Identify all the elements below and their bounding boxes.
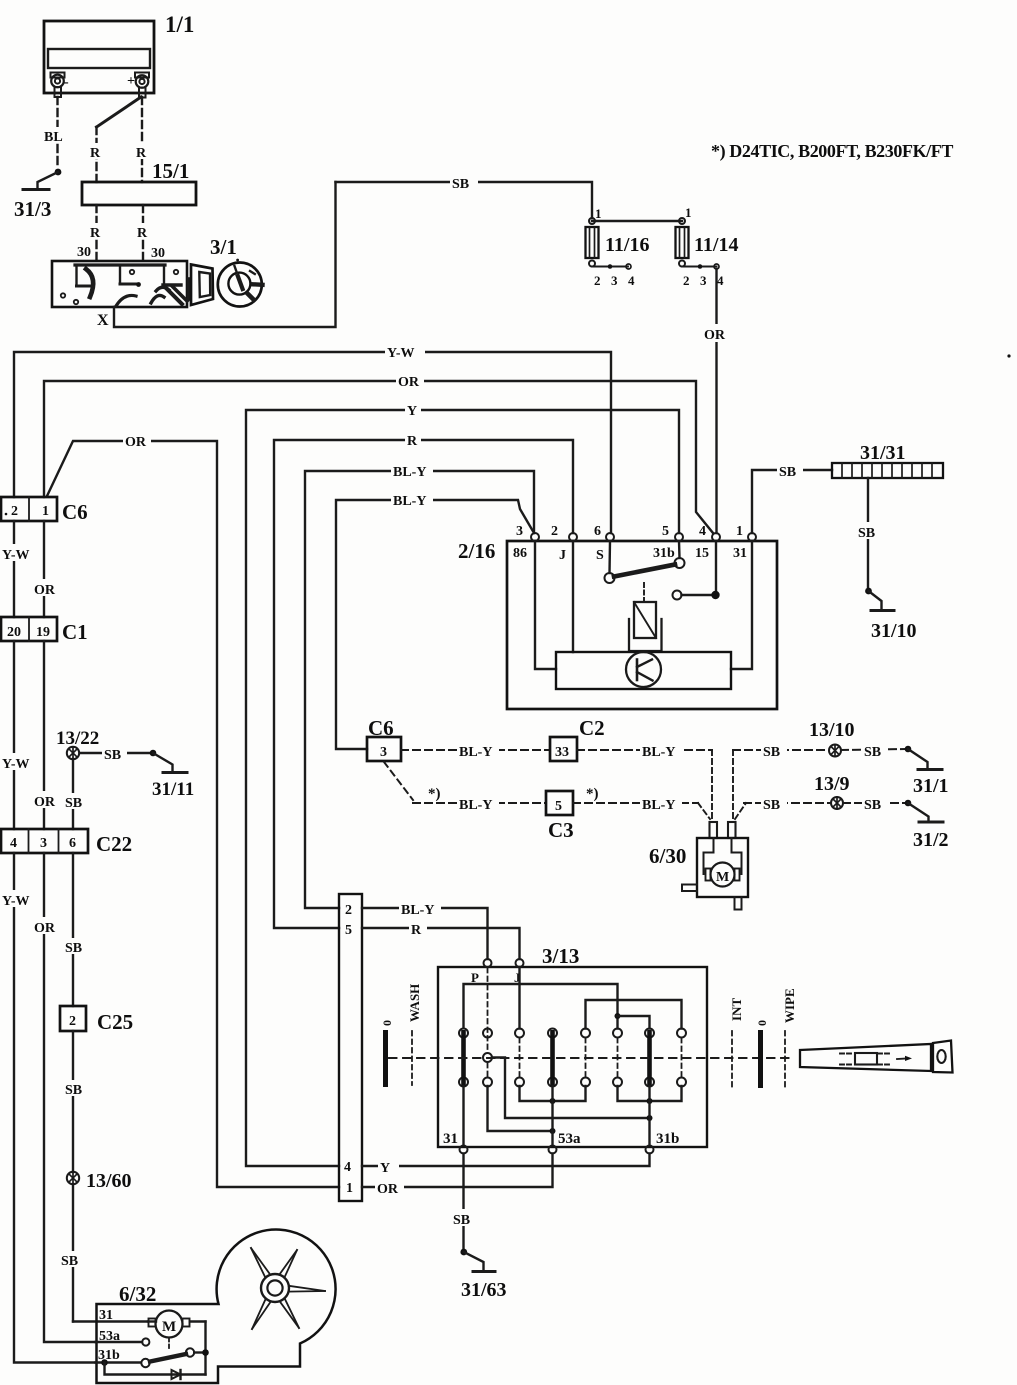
svg-text:WASH: WASH — [407, 984, 422, 1022]
svg-text:OR: OR — [398, 375, 420, 390]
svg-text:SB: SB — [858, 526, 875, 541]
svg-text:WIPE: WIPE — [782, 988, 797, 1023]
svg-text:C2: C2 — [579, 716, 605, 740]
svg-text:Y: Y — [380, 1161, 390, 1176]
svg-text:P: P — [471, 970, 479, 985]
svg-text:SB: SB — [779, 465, 796, 480]
svg-text:OR: OR — [704, 328, 726, 343]
svg-text:SB: SB — [104, 748, 121, 763]
svg-text:J: J — [559, 548, 566, 563]
svg-text:19: 19 — [36, 625, 50, 640]
svg-text:3/13: 3/13 — [542, 944, 579, 968]
svg-text:31: 31 — [443, 1131, 458, 1147]
svg-text:INT: INT — [729, 998, 744, 1021]
svg-text:5: 5 — [555, 799, 562, 814]
svg-text:-: - — [64, 75, 69, 90]
svg-text:13/10: 13/10 — [809, 719, 855, 741]
svg-text:SB: SB — [864, 745, 881, 760]
svg-text:11/16: 11/16 — [605, 234, 649, 256]
svg-text:2/16: 2/16 — [458, 539, 495, 563]
svg-text:53a: 53a — [558, 1131, 581, 1147]
svg-text:SB: SB — [452, 177, 469, 192]
svg-text:+: + — [127, 74, 135, 89]
svg-text:31/10: 31/10 — [871, 620, 917, 642]
svg-text:*): *) — [586, 786, 599, 802]
svg-text:3: 3 — [40, 836, 47, 851]
svg-text:0: 0 — [755, 1020, 769, 1026]
svg-text:SB: SB — [453, 1213, 470, 1228]
svg-text:4: 4 — [10, 836, 17, 851]
svg-text:C6: C6 — [62, 500, 88, 524]
svg-text:86: 86 — [513, 546, 527, 561]
svg-text:4: 4 — [628, 273, 635, 288]
svg-text:1: 1 — [42, 504, 49, 519]
svg-text:13/9: 13/9 — [814, 773, 850, 795]
svg-text:6/32: 6/32 — [119, 1282, 156, 1306]
svg-text:5: 5 — [662, 524, 669, 539]
svg-text:15/1: 15/1 — [152, 159, 189, 183]
svg-text:SB: SB — [65, 1083, 82, 1098]
svg-text:31: 31 — [99, 1308, 113, 1323]
svg-text:20: 20 — [7, 625, 21, 640]
svg-text:1: 1 — [346, 1181, 353, 1196]
svg-text:Y: Y — [407, 404, 417, 419]
svg-text:11/14: 11/14 — [694, 234, 738, 256]
svg-text:OR: OR — [34, 583, 56, 598]
svg-text:0: 0 — [380, 1020, 394, 1026]
svg-text:13/22: 13/22 — [56, 728, 99, 749]
svg-text:C1: C1 — [62, 620, 88, 644]
svg-text:C3: C3 — [548, 818, 574, 842]
svg-text:31b: 31b — [98, 1348, 120, 1363]
svg-text:2: 2 — [345, 903, 352, 918]
svg-text:2: 2 — [11, 504, 18, 519]
svg-text:2: 2 — [551, 524, 558, 539]
svg-text:31b: 31b — [653, 546, 675, 561]
svg-text:C22: C22 — [96, 832, 132, 856]
svg-text:SB: SB — [864, 798, 881, 813]
svg-text:31b: 31b — [656, 1131, 679, 1147]
svg-text:BL-Y: BL-Y — [459, 745, 492, 760]
svg-text:OR: OR — [34, 921, 56, 936]
svg-text:OR: OR — [34, 795, 56, 810]
svg-text:31/11: 31/11 — [152, 779, 194, 800]
svg-text:13/60: 13/60 — [86, 1170, 132, 1192]
svg-text:31: 31 — [733, 546, 747, 561]
svg-text:BL-Y: BL-Y — [393, 494, 426, 509]
svg-text:R: R — [90, 146, 101, 161]
svg-text:6: 6 — [69, 836, 76, 851]
svg-text:X: X — [97, 312, 109, 329]
svg-text:1: 1 — [595, 206, 602, 221]
svg-text:3: 3 — [380, 745, 387, 760]
svg-text:S: S — [596, 548, 604, 563]
svg-text:BL-Y: BL-Y — [393, 465, 426, 480]
svg-text:31/2: 31/2 — [913, 829, 949, 851]
svg-text:3: 3 — [516, 524, 523, 539]
svg-text:BL-Y: BL-Y — [642, 745, 675, 760]
svg-text:R: R — [137, 226, 148, 241]
svg-text:4: 4 — [717, 273, 724, 288]
svg-text:*) D24TIC, B200FT, B230FK/FT: *) D24TIC, B200FT, B230FK/FT — [711, 141, 953, 162]
svg-text:33: 33 — [555, 745, 569, 760]
svg-text:BL-Y: BL-Y — [459, 798, 492, 813]
svg-text:Y-W: Y-W — [387, 346, 415, 361]
svg-text:31/63: 31/63 — [461, 1279, 507, 1301]
svg-text:BL-Y: BL-Y — [642, 798, 675, 813]
svg-text:Y-W: Y-W — [2, 548, 30, 563]
svg-text:Y-W: Y-W — [2, 894, 30, 909]
svg-text:2: 2 — [594, 273, 601, 288]
svg-text:15: 15 — [695, 546, 709, 561]
svg-text:OR: OR — [377, 1182, 399, 1197]
svg-text:SB: SB — [65, 796, 82, 811]
svg-text:3/1: 3/1 — [210, 235, 237, 259]
svg-text:M: M — [162, 1319, 176, 1335]
svg-text:R: R — [136, 146, 147, 161]
svg-text:BL-Y: BL-Y — [401, 903, 434, 918]
svg-text:4: 4 — [344, 1160, 351, 1175]
svg-text:30: 30 — [77, 245, 91, 260]
svg-text:6/30: 6/30 — [649, 844, 686, 868]
svg-text:5: 5 — [345, 923, 352, 938]
svg-text:R: R — [90, 226, 101, 241]
svg-text:3: 3 — [611, 273, 618, 288]
svg-text:6: 6 — [594, 524, 601, 539]
svg-text:31/31: 31/31 — [860, 442, 906, 464]
svg-text:R: R — [407, 434, 418, 449]
svg-text:4: 4 — [699, 524, 706, 539]
svg-text:2: 2 — [683, 273, 690, 288]
svg-text:1: 1 — [736, 524, 743, 539]
svg-text:SB: SB — [65, 941, 82, 956]
svg-text:BL: BL — [44, 130, 63, 145]
svg-text:31/1: 31/1 — [913, 775, 949, 797]
svg-text:1/1: 1/1 — [165, 12, 194, 37]
svg-text:SB: SB — [61, 1254, 78, 1269]
svg-text:*): *) — [428, 786, 441, 802]
svg-text:M: M — [716, 870, 729, 885]
svg-text:Y-W: Y-W — [2, 757, 30, 772]
svg-text:1: 1 — [685, 205, 692, 220]
svg-text:31/3: 31/3 — [14, 197, 51, 221]
svg-text:3: 3 — [700, 273, 707, 288]
svg-text:30: 30 — [151, 246, 165, 261]
svg-text:SB: SB — [763, 798, 780, 813]
svg-text:C25: C25 — [97, 1010, 133, 1034]
svg-text:OR: OR — [125, 435, 147, 450]
svg-text:R: R — [411, 923, 422, 938]
svg-text:SB: SB — [763, 745, 780, 760]
svg-text:2: 2 — [69, 1014, 76, 1029]
